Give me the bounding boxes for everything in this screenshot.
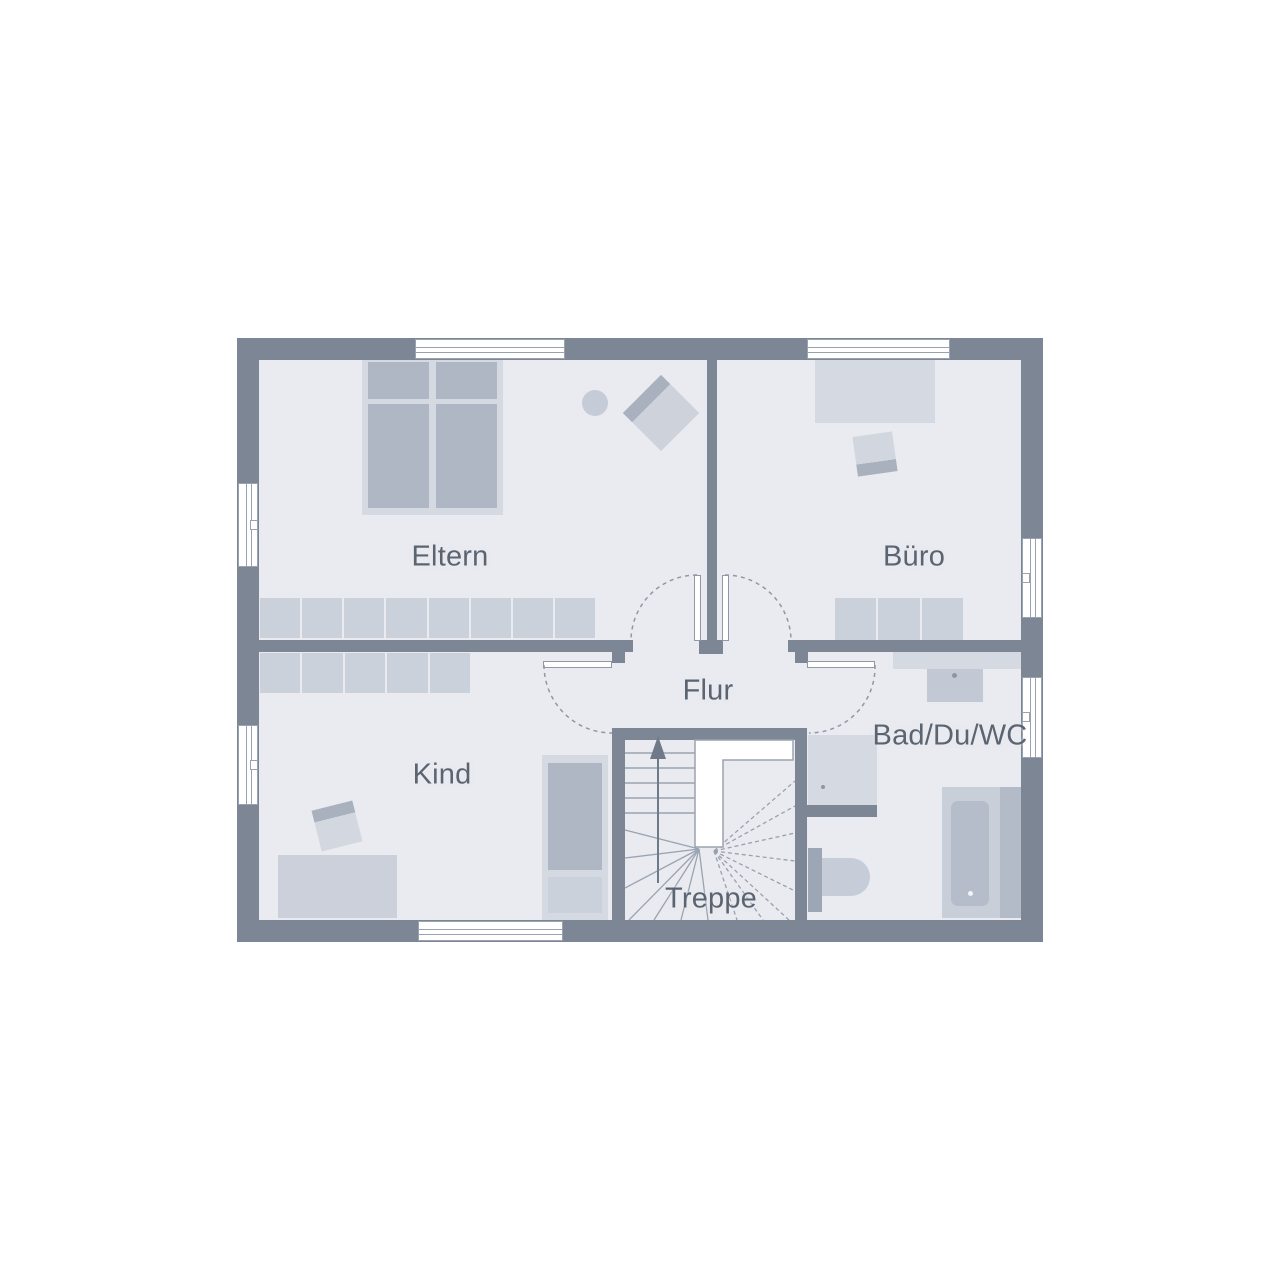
toilet-cistern bbox=[808, 848, 822, 912]
single-bed bbox=[542, 755, 608, 920]
wall-outer-left bbox=[237, 338, 259, 942]
wall-stair-right bbox=[795, 728, 807, 920]
room-label-bad: Bad/Du/WC bbox=[873, 720, 1028, 753]
wall-eltern-buero-divider bbox=[707, 358, 717, 641]
wall-mid-stub bbox=[699, 640, 723, 654]
bed-mattress bbox=[548, 763, 602, 870]
window-handle-icon bbox=[250, 760, 258, 770]
wardrobe-eltern bbox=[260, 598, 595, 638]
wall-shower-stub bbox=[807, 805, 877, 817]
wall-stair-left bbox=[612, 728, 625, 920]
bed-pillow bbox=[368, 362, 429, 399]
window-kind-bottom bbox=[418, 921, 563, 941]
shower bbox=[808, 735, 877, 805]
washbasin bbox=[927, 669, 983, 702]
bathtub-basin bbox=[951, 801, 989, 906]
double-bed bbox=[362, 360, 503, 515]
door-leaf-buero bbox=[722, 575, 729, 641]
shower-drain bbox=[821, 785, 825, 789]
basin-drain bbox=[952, 673, 957, 678]
toilet-bowl bbox=[822, 858, 870, 896]
window-buero-top bbox=[807, 339, 950, 359]
desk-kind bbox=[278, 855, 397, 918]
bed-mattress bbox=[368, 404, 429, 508]
bed-pillow bbox=[436, 362, 497, 399]
floor-plan-page: Eltern Büro Flur Kind Bad/Du/WC Treppe bbox=[0, 0, 1280, 1280]
wall-mid-right bbox=[788, 640, 1021, 652]
wall-mid-left bbox=[259, 640, 633, 652]
bed-foot-section bbox=[548, 877, 602, 913]
bathtub bbox=[942, 787, 1000, 918]
wardrobe-kind bbox=[260, 653, 470, 693]
vanity-counter bbox=[893, 652, 1021, 669]
window-handle-icon bbox=[250, 520, 258, 530]
room-label-kind: Kind bbox=[413, 759, 472, 792]
bed-mattress bbox=[436, 404, 497, 508]
door-leaf-bad bbox=[807, 661, 875, 668]
office-chair bbox=[852, 431, 897, 476]
window-eltern-top bbox=[415, 339, 565, 359]
room-label-flur: Flur bbox=[683, 675, 734, 708]
side-table bbox=[582, 390, 608, 416]
wall-post-kind-door bbox=[612, 652, 625, 663]
room-label-treppe: Treppe bbox=[665, 883, 757, 916]
wall-outer-right bbox=[1021, 338, 1043, 942]
bathtub-shelf bbox=[1000, 787, 1021, 918]
floor-plan: Eltern Büro Flur Kind Bad/Du/WC Treppe bbox=[237, 338, 1043, 942]
sideboard-buero bbox=[835, 598, 963, 640]
window-handle-icon bbox=[1022, 573, 1030, 583]
wall-outer-bottom bbox=[237, 920, 1043, 942]
door-leaf-kind bbox=[543, 661, 612, 668]
desk-buero bbox=[815, 360, 935, 423]
wall-stair-top bbox=[612, 728, 807, 740]
room-label-eltern: Eltern bbox=[412, 541, 489, 574]
bathtub-drain bbox=[968, 891, 973, 896]
room-label-buero: Büro bbox=[883, 541, 945, 574]
door-leaf-eltern bbox=[694, 575, 701, 641]
